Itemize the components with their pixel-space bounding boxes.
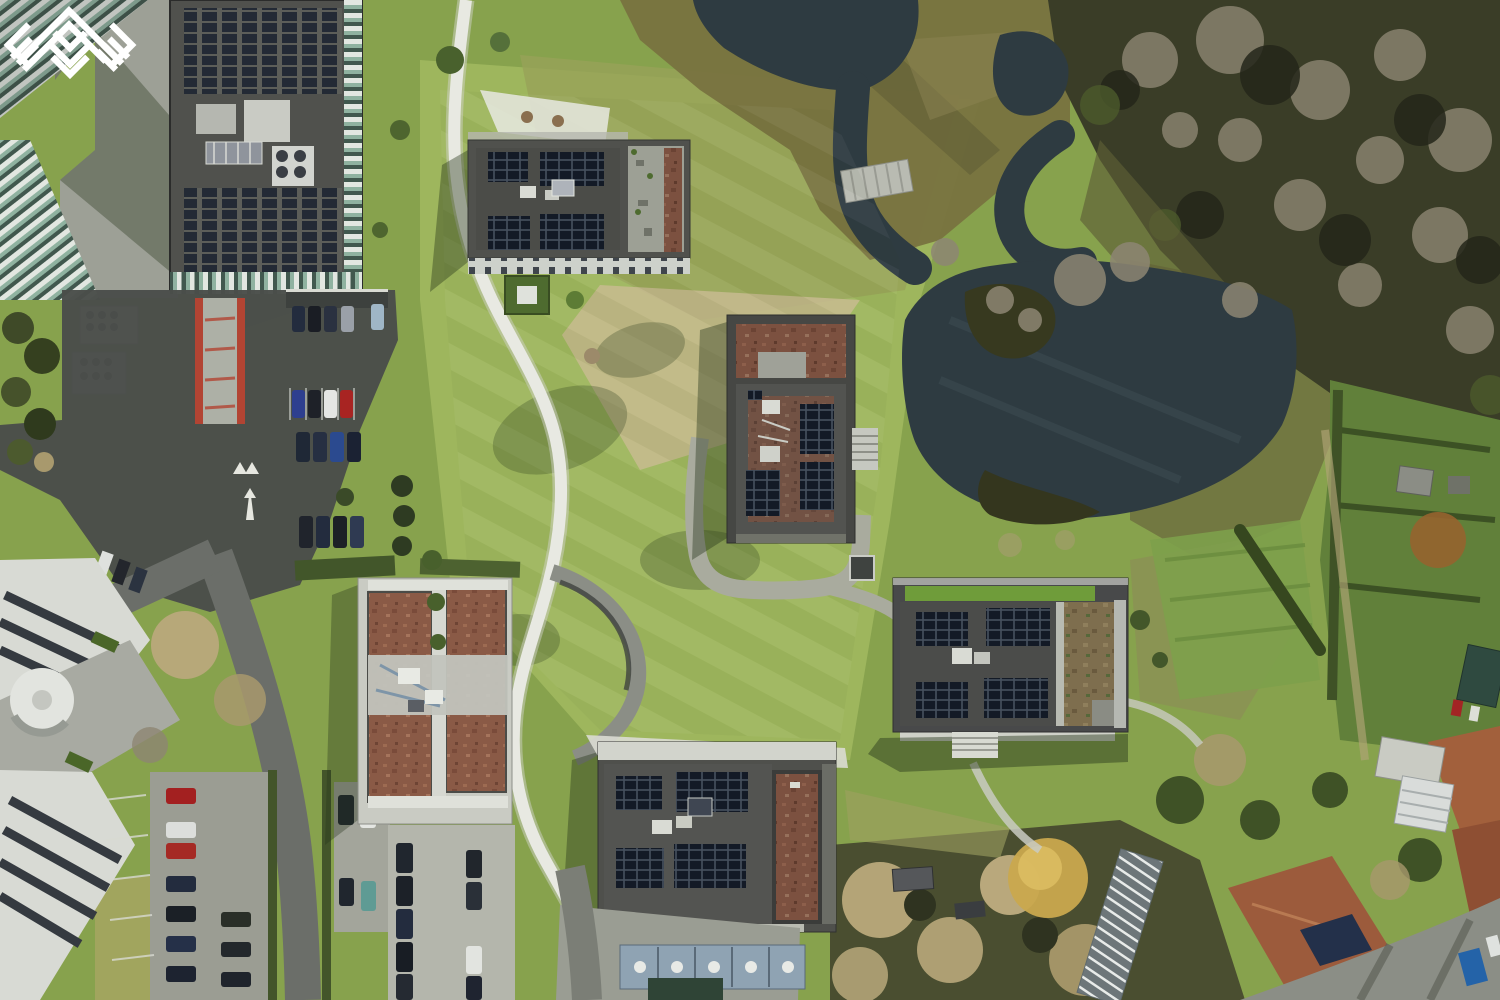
solar-array xyxy=(800,404,834,454)
aerial-photo xyxy=(0,0,1500,1000)
skylight xyxy=(688,798,712,816)
rooftop-hvac xyxy=(974,652,990,664)
solar-array xyxy=(184,8,342,94)
shed xyxy=(954,900,986,919)
solar-array xyxy=(616,776,662,810)
chevron-weave-logo-icon xyxy=(0,0,140,82)
garden-shed xyxy=(1396,466,1433,496)
building-b xyxy=(692,315,878,560)
rooftop-hvac xyxy=(762,400,780,414)
solar-array xyxy=(540,214,604,250)
stairs xyxy=(852,428,878,470)
shed xyxy=(892,867,933,892)
solar-array xyxy=(488,216,530,250)
rooftop-hvac xyxy=(408,700,424,712)
rooftop-hvac xyxy=(398,668,420,684)
hedge xyxy=(268,770,277,1000)
concrete-pad xyxy=(758,352,806,378)
solar-array xyxy=(984,678,1048,718)
rooftop-hvac xyxy=(676,816,692,828)
building-e xyxy=(325,578,512,845)
golden-tree-highlight xyxy=(1018,846,1062,890)
copper-shrub xyxy=(1410,512,1466,568)
skylight xyxy=(552,180,574,196)
solar-array xyxy=(986,608,1050,646)
solar-array xyxy=(916,682,968,718)
roof-grass-strip xyxy=(905,586,1095,601)
garage-road xyxy=(570,868,587,1000)
watermark-strokes xyxy=(8,11,132,75)
building-d xyxy=(556,735,848,1000)
bare-tree xyxy=(151,611,219,679)
bare-tree xyxy=(1370,860,1410,900)
solar-array xyxy=(184,188,342,272)
office-main-building xyxy=(170,0,362,294)
bare-tree xyxy=(214,674,266,726)
rooftop-hvac xyxy=(196,104,236,134)
parapet-walk xyxy=(598,742,836,760)
rooftop-hvac xyxy=(760,446,780,462)
solar-array xyxy=(488,152,528,182)
stairwell xyxy=(1092,700,1114,726)
south-facade xyxy=(468,258,690,274)
bench xyxy=(552,115,564,127)
striped-facade-east xyxy=(344,0,362,290)
rooftop-hvac xyxy=(425,690,443,704)
garden-shed xyxy=(1448,476,1470,494)
shed xyxy=(648,978,723,1000)
utility-kiosk xyxy=(850,556,874,580)
bench xyxy=(521,111,533,123)
rooftop-hvac xyxy=(652,820,672,834)
solar-array xyxy=(800,462,834,510)
building-c xyxy=(868,578,1128,772)
rooftop-hvac xyxy=(520,186,536,198)
parked-cars-column xyxy=(396,843,413,1000)
solar-array xyxy=(674,844,746,888)
bare-tree xyxy=(132,727,168,763)
solar-array xyxy=(916,612,968,646)
solar-array xyxy=(748,390,762,400)
gravel-strip xyxy=(664,148,682,252)
parked-cars-column xyxy=(221,912,251,987)
gravel-strip xyxy=(776,774,818,920)
carport xyxy=(1394,776,1454,832)
rooftop-hvac xyxy=(244,100,290,142)
rooftop-hvac xyxy=(952,648,972,664)
solar-array xyxy=(746,470,780,516)
solar-array xyxy=(616,848,664,888)
aerial-scene xyxy=(0,0,1500,1000)
entrance-skylight xyxy=(517,286,537,304)
